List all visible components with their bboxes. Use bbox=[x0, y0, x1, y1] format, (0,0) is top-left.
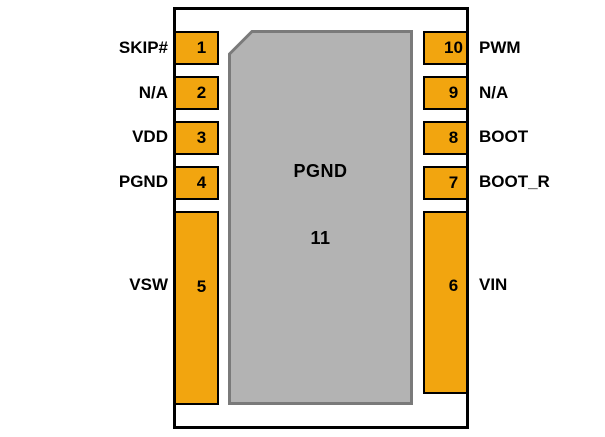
pin-number-3: 3 bbox=[181, 128, 222, 148]
pin-number-6: 6 bbox=[433, 276, 474, 296]
center-pad bbox=[228, 30, 413, 405]
pin-pad-1: 1 bbox=[174, 31, 219, 65]
center-pad-number: 11 bbox=[228, 228, 413, 248]
pinout-diagram: PGND 11 1 2 3 4 5 10 9 8 7 6 SKIP# N/A V… bbox=[0, 0, 605, 437]
pin-number-5: 5 bbox=[181, 277, 222, 297]
pin-pad-5: 5 bbox=[174, 211, 219, 405]
center-pad-label: PGND bbox=[228, 161, 413, 181]
pin-pad-10: 10 bbox=[423, 31, 468, 65]
pin-label-pgnd: PGND bbox=[50, 172, 168, 192]
pin-pad-4: 4 bbox=[174, 166, 219, 200]
pin-number-7: 7 bbox=[433, 173, 474, 193]
pin-label-skip: SKIP# bbox=[50, 38, 168, 58]
pin-label-boot-r: BOOT_R bbox=[479, 172, 603, 192]
pin-number-2: 2 bbox=[181, 83, 222, 103]
pin-pad-9: 9 bbox=[423, 76, 468, 110]
pin-label-vsw: VSW bbox=[50, 275, 168, 295]
pin-number-8: 8 bbox=[433, 128, 474, 148]
pin-label-na-right: N/A bbox=[479, 83, 603, 103]
pin-number-4: 4 bbox=[181, 173, 222, 193]
pin-label-pwm: PWM bbox=[479, 38, 603, 58]
pin-label-vdd: VDD bbox=[50, 127, 168, 147]
pin-number-9: 9 bbox=[433, 83, 474, 103]
pin-pad-7: 7 bbox=[423, 166, 468, 200]
pin-pad-3: 3 bbox=[174, 121, 219, 155]
pin-label-na-left: N/A bbox=[50, 83, 168, 103]
pin-pad-2: 2 bbox=[174, 76, 219, 110]
pin-label-boot: BOOT bbox=[479, 127, 603, 147]
pin-number-1: 1 bbox=[181, 38, 222, 58]
pin-number-10: 10 bbox=[433, 38, 474, 58]
pin-label-vin: VIN bbox=[479, 275, 603, 295]
pin-pad-8: 8 bbox=[423, 121, 468, 155]
pin-pad-6: 6 bbox=[423, 211, 468, 394]
